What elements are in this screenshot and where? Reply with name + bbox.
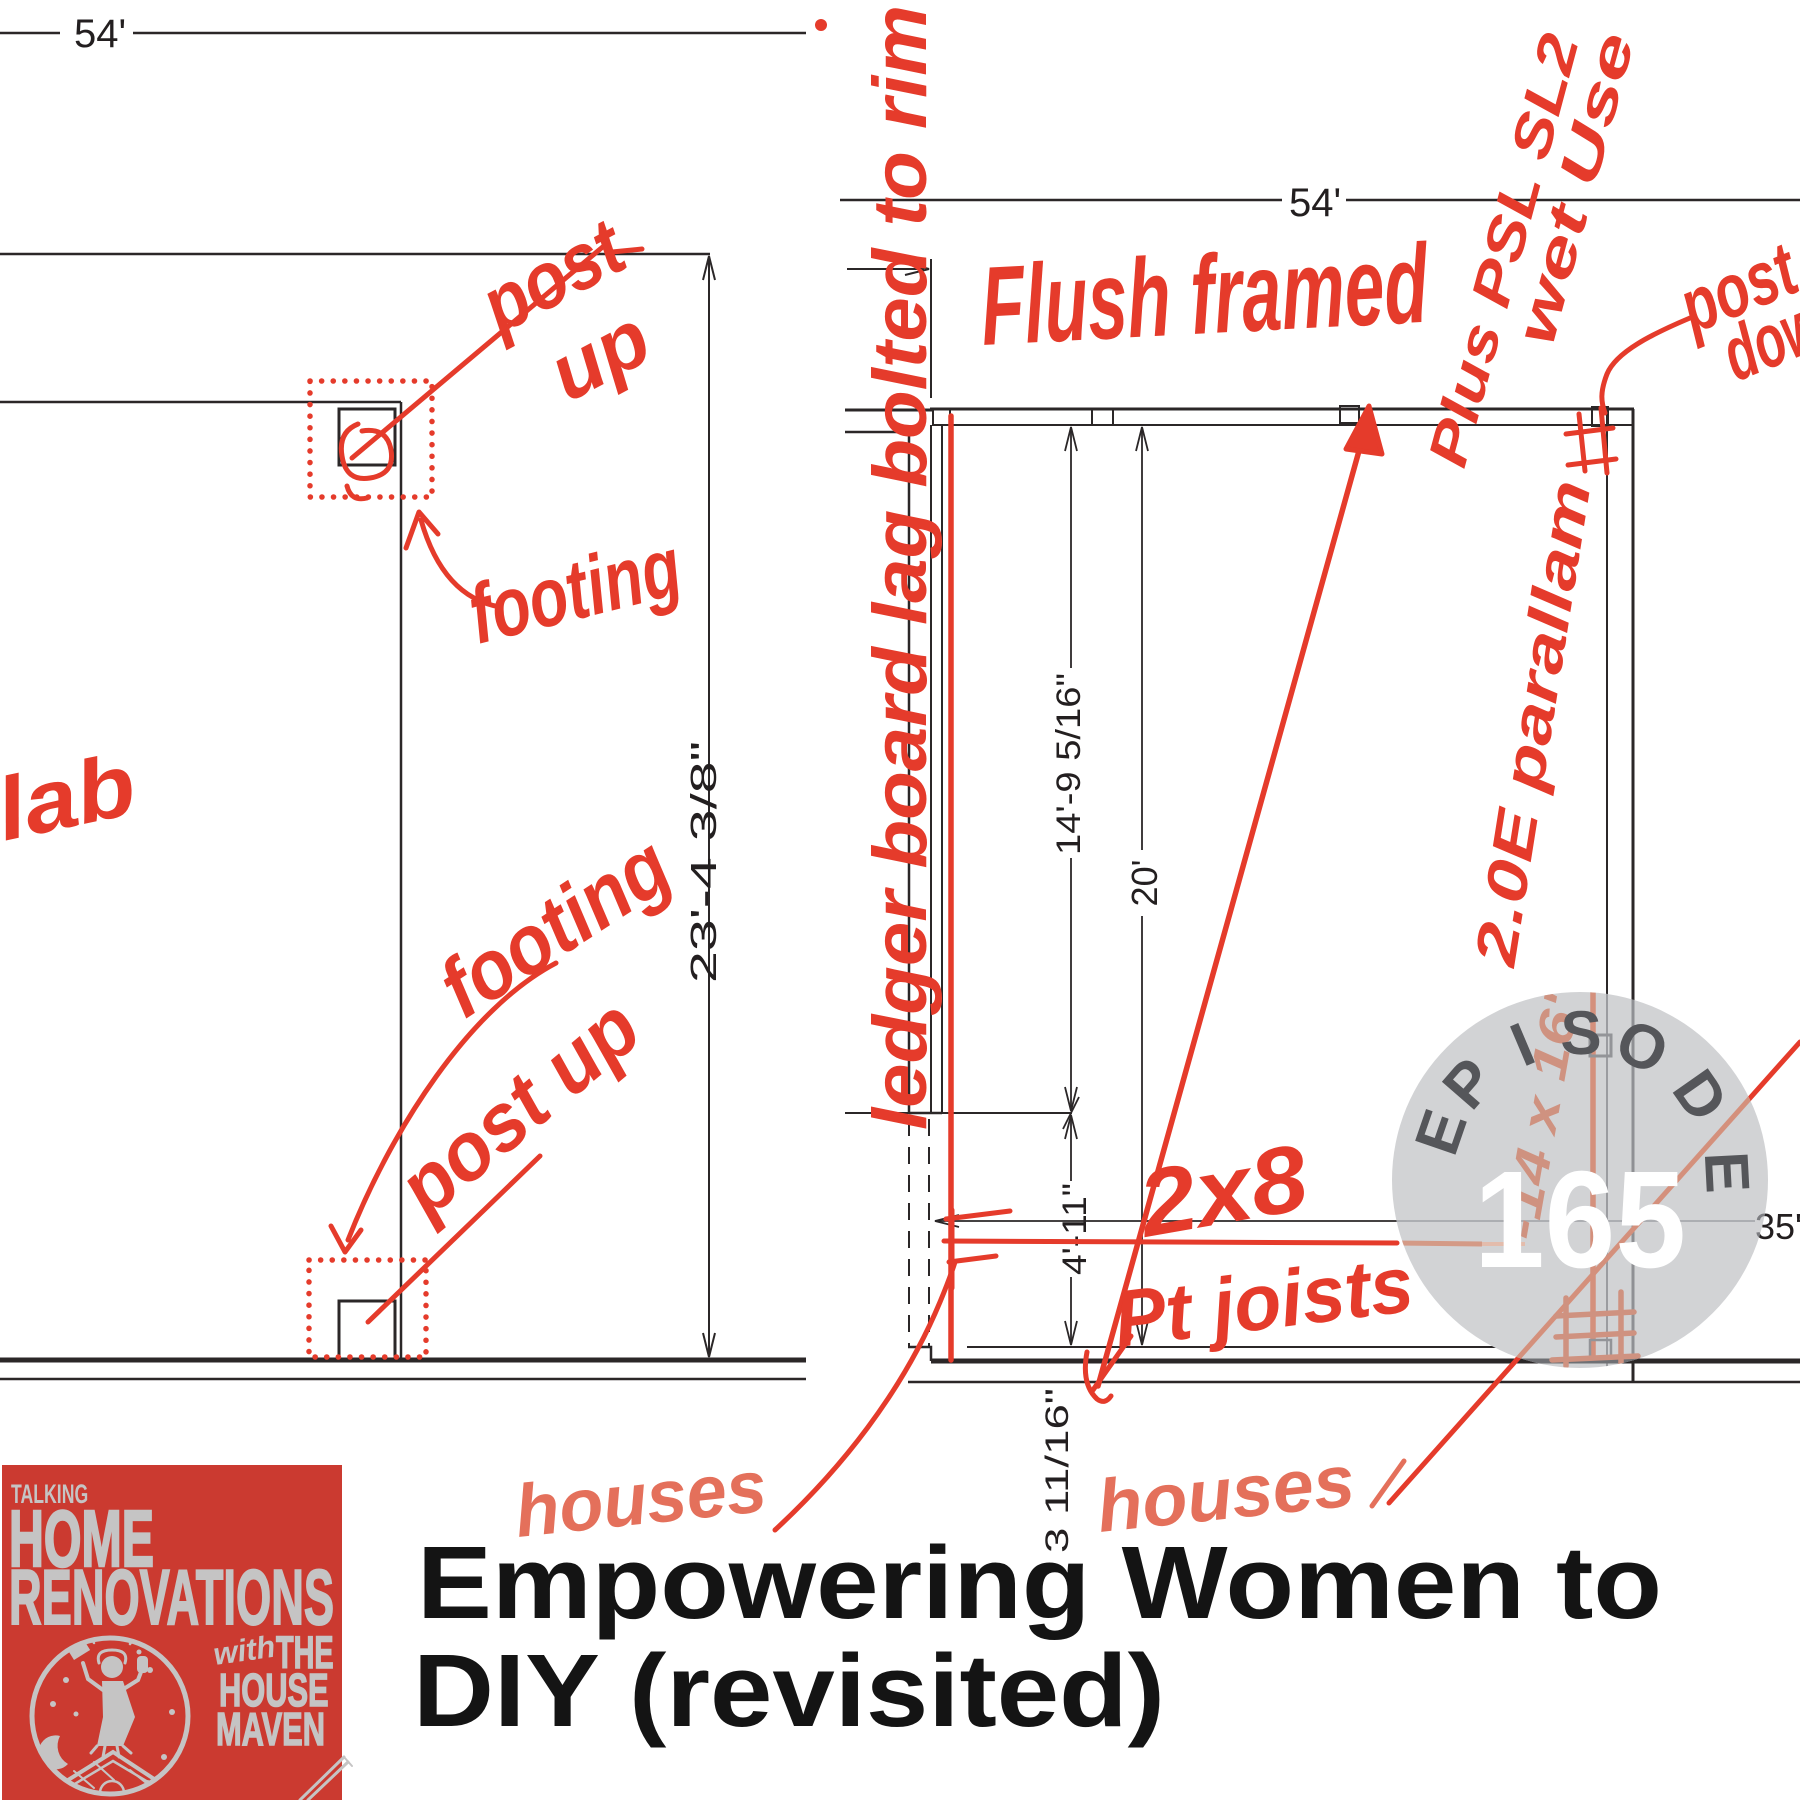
svg-text:MAVEN: MAVEN bbox=[216, 1705, 325, 1756]
svg-text:54': 54' bbox=[1289, 181, 1341, 225]
svg-text:54': 54' bbox=[74, 12, 126, 56]
svg-text:14'-9 5/16": 14'-9 5/16" bbox=[1050, 673, 1088, 855]
svg-text:E: E bbox=[1691, 1150, 1762, 1195]
svg-text:Empowering Women to: Empowering Women to bbox=[417, 1525, 1662, 1640]
svg-text:4'-11": 4'-11" bbox=[1056, 1183, 1094, 1275]
svg-text:20': 20' bbox=[1124, 860, 1165, 907]
svg-text:23'-4 3/8": 23'-4 3/8" bbox=[683, 741, 724, 983]
svg-text:Flush framed: Flush framed bbox=[978, 221, 1433, 369]
svg-text:ledger board lag bolted to rim: ledger board lag bolted to rim bbox=[858, 5, 943, 1130]
svg-text:DIY (revisited): DIY (revisited) bbox=[413, 1633, 1165, 1748]
svg-text:165: 165 bbox=[1474, 1143, 1686, 1297]
svg-text:S: S bbox=[1560, 999, 1602, 1068]
